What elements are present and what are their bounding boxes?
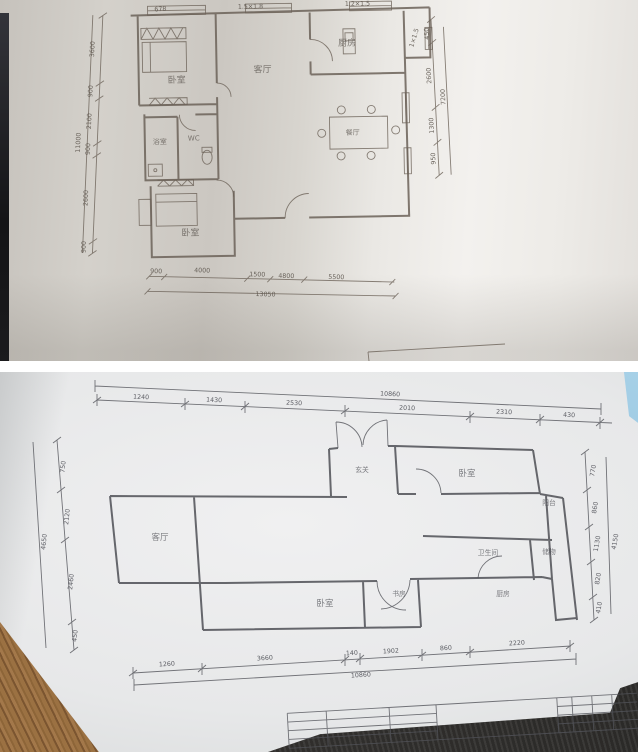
room-label-kitchen: 厨房 xyxy=(338,37,356,49)
dim-total: 7200 xyxy=(440,89,448,105)
dim-label: 2310 xyxy=(496,409,512,417)
dim-label: 1902 xyxy=(383,648,399,656)
dim-label: 1260 xyxy=(159,661,175,669)
room-label-dining: 餐厅 xyxy=(346,128,360,137)
room-label-living: 客厅 xyxy=(253,63,271,75)
dim-label: 860 xyxy=(591,501,600,514)
top-photo-floorplan-sketch: 3600 900 2100 900 2600 900 11000 450 260… xyxy=(0,0,638,361)
room-label-bathroom: 卫生间 xyxy=(478,548,499,557)
dim-label: 2600 xyxy=(426,68,434,84)
bottom-floorplan-drawing: 1240 1430 2530 2010 2310 430 10860 1260 … xyxy=(0,372,638,752)
dim-label: 1300 xyxy=(428,117,436,133)
dim-label: 900 xyxy=(85,143,93,155)
dim-label: 1240 xyxy=(133,394,149,402)
room-label-bedroom-2: 卧室 xyxy=(181,226,199,238)
dim-total: 4650 xyxy=(40,534,49,551)
dim-label: 2100 xyxy=(86,113,94,129)
dim-label: 4000 xyxy=(194,267,210,274)
room-label-bath: 浴室 xyxy=(153,137,167,146)
window-size-label: 1.2×1.5 xyxy=(345,0,370,7)
dim-total: 11000 xyxy=(75,133,83,153)
dimension-chain-bottom: 1260 3660 140 1902 860 2220 10860 xyxy=(129,640,576,691)
dim-label: 900 xyxy=(87,85,95,97)
room-label-bedroom-lower: 卧室 xyxy=(316,598,334,609)
window-size-label: 678 xyxy=(154,6,166,14)
dim-label: 5500 xyxy=(328,274,344,281)
room-label-balcony: 阳台 xyxy=(542,498,556,507)
dim-label: 1430 xyxy=(206,397,222,405)
dim-label: 140 xyxy=(346,650,358,658)
dim-label: 1500 xyxy=(249,271,265,278)
dimension-chain-top: 1240 1430 2530 2010 2310 430 10860 xyxy=(93,380,612,429)
dim-label: 2600 xyxy=(83,190,91,206)
room-label-storage: 储物 xyxy=(542,547,556,556)
dim-label: 820 xyxy=(594,572,603,585)
windows xyxy=(147,0,434,178)
dim-label: 2530 xyxy=(286,400,302,408)
room-label-bedroom-1: 卧室 xyxy=(168,74,186,86)
dim-label: 860 xyxy=(440,645,452,653)
dim-total: 13050 xyxy=(255,291,275,298)
dim-label: 430 xyxy=(563,412,575,420)
dimension-chain-left: 3600 900 2100 900 2600 900 11000 xyxy=(70,12,107,257)
room-label-living: 客厅 xyxy=(151,532,169,543)
dim-label: 450 xyxy=(423,28,431,40)
room-label-entry: 玄关 xyxy=(355,465,369,474)
dim-label: 2220 xyxy=(509,640,525,648)
walls xyxy=(131,7,434,257)
dim-label: 1130 xyxy=(593,535,603,552)
top-floorplan-drawing: 3600 900 2100 900 2600 900 11000 450 260… xyxy=(0,0,638,361)
other-sheet-corner xyxy=(368,344,505,361)
dimension-chain-right: 450 2600 1300 950 7200 1×1.5 xyxy=(407,16,451,180)
dim-label: 2120 xyxy=(63,509,72,526)
dimension-chain-bottom: 900 4000 1500 4800 5500 13050 xyxy=(144,264,399,304)
furniture xyxy=(136,24,401,227)
dim-total: 10860 xyxy=(380,391,400,399)
dim-label: 900 xyxy=(150,268,162,275)
dim-label: 950 xyxy=(430,152,438,164)
room-label-bedroom-right: 卧室 xyxy=(458,468,476,479)
dim-label: 450 xyxy=(71,629,79,642)
dim-label: 4800 xyxy=(278,273,294,280)
dimension-chain-right: 770 860 1130 820 410 4150 xyxy=(581,449,620,623)
dim-label: 410 xyxy=(595,601,604,614)
room-label-study: 书房 xyxy=(392,589,406,598)
dimension-chain-left: 750 2120 2460 450 4650 xyxy=(33,437,80,653)
walls xyxy=(110,446,577,630)
dim-label: 2010 xyxy=(399,405,415,413)
dim-label: 3660 xyxy=(257,655,273,663)
screenshot: 3600 900 2100 900 2600 900 11000 450 260… xyxy=(0,0,638,752)
window-size-label: 1.5×1.8 xyxy=(238,3,263,10)
dim-total: 10860 xyxy=(351,671,371,679)
dim-label: 3600 xyxy=(89,41,97,57)
bottom-photo-floorplan-sketch: 1240 1430 2530 2010 2310 430 10860 1260 … xyxy=(0,372,638,752)
dim-label: 900 xyxy=(80,241,88,253)
window-size-label: 1×1.5 xyxy=(408,28,420,49)
title-block-table xyxy=(287,693,638,748)
dim-label: 2460 xyxy=(67,574,76,591)
dim-total: 4150 xyxy=(611,533,621,550)
dim-label: 750 xyxy=(59,460,67,473)
room-label-wc: WC xyxy=(188,134,200,142)
room-label-kitchen: 厨房 xyxy=(496,589,510,598)
dim-label: 770 xyxy=(589,464,598,477)
